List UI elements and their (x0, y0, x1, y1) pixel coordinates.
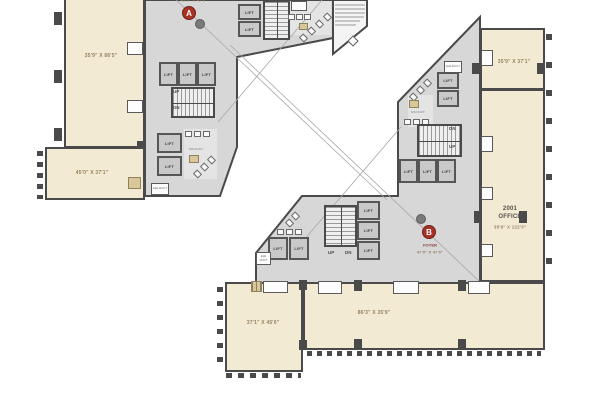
lift-cab: LIFT (197, 62, 216, 86)
pilaster (537, 63, 545, 74)
stair-divider (419, 141, 460, 142)
office-dims: 35'9" X 122'3" (494, 225, 526, 230)
stair-b-lower (324, 205, 357, 247)
pantry-counter (194, 131, 201, 137)
ticks-b3-bottom (307, 351, 541, 356)
pantry-counter (288, 14, 295, 20)
shaft-box (128, 177, 141, 189)
window (481, 187, 493, 200)
kitchen-box (251, 281, 262, 292)
pantry-counter (404, 119, 411, 125)
stair-divider (277, 2, 278, 38)
stair-a-top (263, 0, 290, 40)
pilaster (54, 70, 62, 83)
ms-duct-label: MS DUCT (189, 147, 203, 151)
pilaster (472, 63, 480, 74)
stair-dn-label: DN (173, 105, 180, 110)
pantry-counter (277, 229, 284, 235)
lift-cab: LIFT (178, 62, 197, 86)
lift-cab: LIFT (238, 4, 261, 20)
ticks-b-wing-right (546, 34, 552, 274)
window (127, 100, 143, 113)
pilaster (54, 12, 62, 25)
lift-cab: LIFT (289, 237, 309, 260)
column-dot (195, 19, 205, 29)
window (481, 244, 493, 257)
wall-b-wing-divider (480, 88, 545, 91)
ticks-a2-left (37, 151, 43, 199)
stair-dn-label: DN (345, 250, 352, 255)
room-b4-dims: 37'1" X 45'0" (247, 320, 280, 326)
floor-plan: 35'9" X 86'5" 45'0" X 37'1" 35'9" X 37'1… (0, 0, 600, 400)
column-dot (416, 214, 426, 224)
foyer-a-dims: 47'0" X 47'0" (181, 0, 208, 3)
window (127, 42, 143, 55)
lift-cab: LIFT (238, 21, 261, 37)
pilaster (458, 280, 466, 291)
ele-duct-box: ELE DUCT (256, 252, 271, 265)
lift-cab: LIFT (357, 201, 380, 220)
stair-up-label: UP (328, 250, 334, 255)
stair-dn-label: DN (449, 126, 456, 131)
ms-duct-box (189, 155, 199, 163)
lift-cab: LIFT (437, 90, 459, 107)
window (318, 281, 342, 294)
room-a2-dims: 45'0" X 37'1" (76, 170, 109, 176)
pilaster (54, 128, 62, 141)
window (263, 281, 288, 293)
pilaster (458, 339, 466, 350)
lift-cab: LIFT (157, 133, 182, 153)
pilaster (354, 339, 362, 350)
lift-cab: LIFT (157, 156, 182, 176)
stair-divider (341, 207, 342, 245)
ele-duct-box: ELE DUCT (151, 183, 169, 195)
ticks-b4-left (217, 287, 223, 369)
office-number: 2001 (503, 206, 517, 212)
pantry-counter (295, 229, 302, 235)
ms-duct-label: MS DUCT (411, 110, 425, 114)
lift-cab: LIFT (437, 72, 459, 89)
stair-up-label: UP (173, 89, 179, 94)
lift-cab: LIFT (159, 62, 178, 86)
pantry-counter (286, 229, 293, 235)
foyer-b-label: FOYER (423, 243, 437, 248)
duct-box (291, 1, 307, 11)
pilaster (354, 280, 362, 291)
stair-up-label: UP (449, 144, 455, 149)
tower-b-marker[interactable]: B (422, 225, 436, 239)
adjacent-stair-block (333, 0, 367, 54)
pilaster (137, 141, 146, 149)
ms-duct-box (409, 100, 419, 108)
lift-cab: LIFT (437, 159, 456, 183)
ms-duct-box (299, 23, 308, 30)
window (468, 281, 490, 294)
lift-cab: LIFT (418, 159, 437, 183)
lift-cab: LIFT (357, 221, 380, 240)
window (481, 50, 493, 66)
pantry-counter (304, 14, 311, 20)
pilaster (474, 211, 482, 223)
lift-cab: LIFT (399, 159, 418, 183)
room-a1 (64, 0, 145, 148)
pilaster (299, 340, 307, 350)
room-b3-dims: 86'3" X 35'9" (358, 310, 391, 316)
lift-cab: LIFT (268, 237, 288, 260)
room-a1-dims: 35'9" X 86'5" (85, 53, 118, 59)
tower-a-marker[interactable]: A (182, 6, 196, 20)
stair-divider (173, 103, 213, 104)
foyer-b-dims: 47'0" X 47'0" (417, 250, 444, 255)
window (481, 136, 493, 152)
pantry-counter (203, 131, 210, 137)
window (393, 281, 419, 294)
room-b-bottom-left (225, 282, 303, 372)
pilaster (299, 280, 307, 290)
lift-cab: LIFT (357, 241, 380, 260)
pilaster (519, 211, 527, 223)
ticks-b4-bottom (226, 373, 301, 378)
room-b1-dims: 35'9" X 37'1" (498, 59, 531, 65)
pantry-counter (296, 14, 303, 20)
pantry-counter (185, 131, 192, 137)
